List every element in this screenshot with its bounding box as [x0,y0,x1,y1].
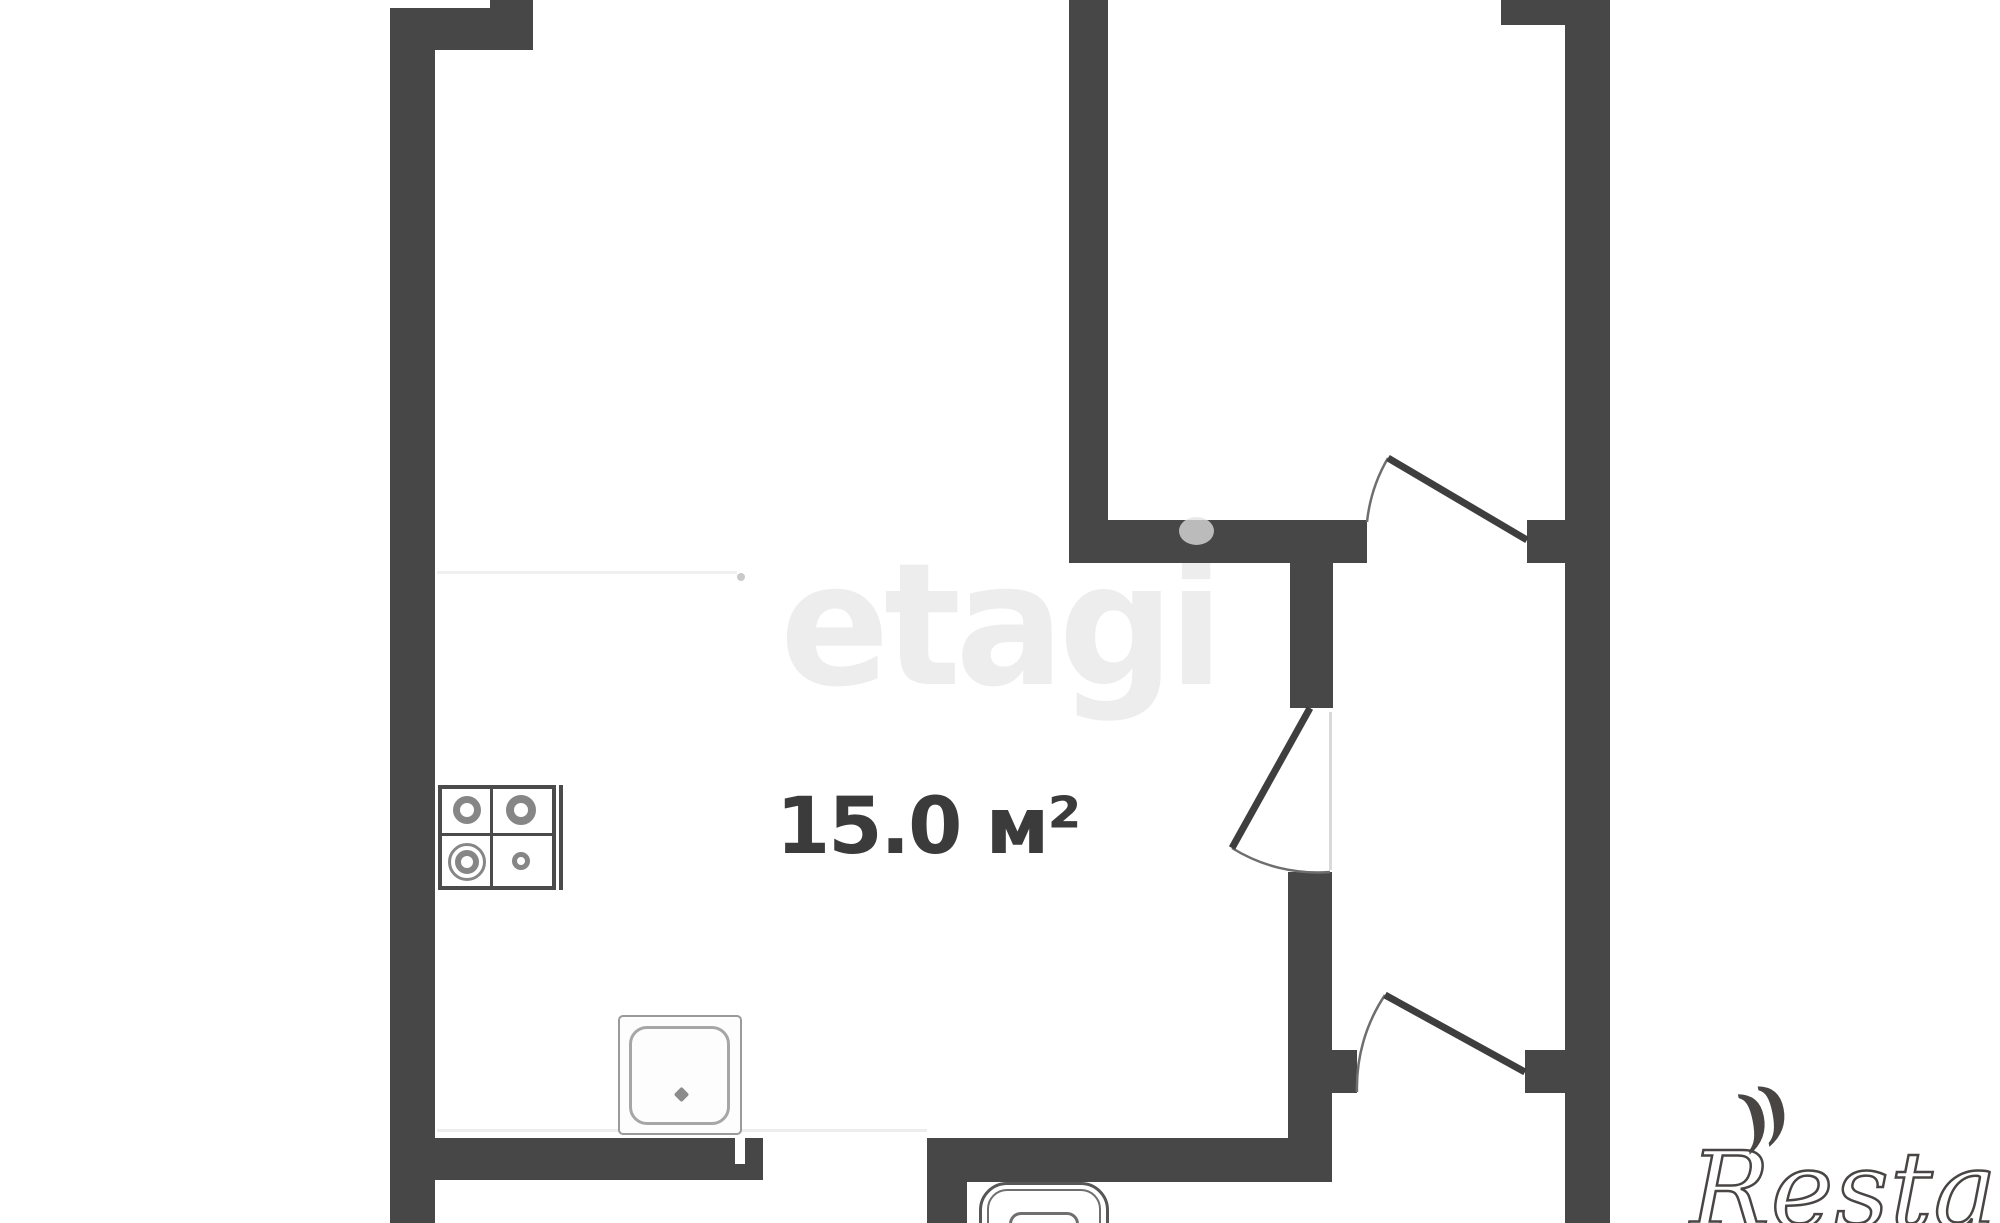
burner-icon [453,796,481,824]
watermark-dot-overlay [737,573,745,581]
stove-divider-horizontal [438,833,556,836]
sink-icon [618,1015,742,1135]
burner-icon [512,852,530,870]
sink-basin [629,1026,730,1125]
restate-text: Restate [1690,1138,2000,1223]
toilet-seat [1009,1212,1079,1223]
restate-watermark: )) Restate [1690,1088,2000,1223]
door-leaf [1388,458,1527,540]
burner-icon [506,795,536,825]
door-swing-arc [1367,458,1388,522]
door-swing-arc [1232,848,1330,872]
burner-icon [455,850,479,874]
watermark-dot-overlay [1179,517,1214,545]
toilet-icon [977,1182,1113,1223]
door-leaf [1385,995,1525,1072]
doors-layer [0,0,2000,1223]
stove-edge-line [559,785,563,890]
door-leaf [1232,708,1310,848]
door-swing-arc [1357,995,1385,1092]
room-area-label: 15.0 м² [776,788,1080,866]
stove-icon [438,785,563,890]
stove-divider-vertical [490,785,493,890]
floorplan-canvas: etagi 15.0 м² )) Restate [0,0,2000,1223]
